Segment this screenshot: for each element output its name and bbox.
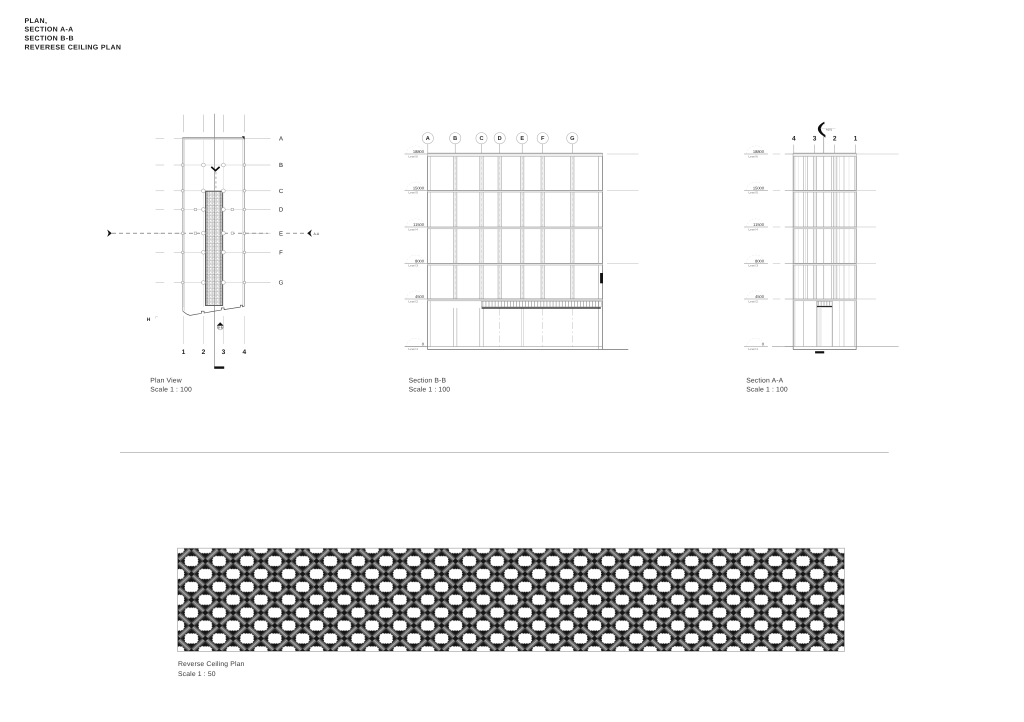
svg-text:C: C	[279, 188, 284, 195]
svg-text:F: F	[541, 136, 545, 142]
svg-text:4: 4	[792, 136, 796, 143]
svg-text:F: F	[279, 249, 283, 256]
svg-text:G: G	[279, 280, 284, 287]
svg-text:SECTION A-A: SECTION A-A	[25, 27, 74, 34]
svg-text:B: B	[279, 162, 283, 169]
svg-text:Scale 1 : 100: Scale 1 : 100	[150, 386, 192, 393]
svg-text:4: 4	[242, 349, 246, 356]
svg-text:11500: 11500	[753, 222, 765, 227]
svg-text:Level 1: Level 1	[749, 347, 759, 351]
svg-text:Section B-B: Section B-B	[409, 377, 447, 384]
svg-text:Scale 1 : 100: Scale 1 : 100	[409, 386, 451, 393]
svg-text:3: 3	[813, 136, 817, 143]
svg-text:REVERESE CEILING PLAN: REVERESE CEILING PLAN	[25, 44, 122, 51]
svg-text:Section A-A: Section A-A	[746, 377, 783, 384]
svg-text:H: H	[147, 317, 151, 323]
svg-text:A: A	[279, 135, 283, 142]
svg-text:E: E	[520, 136, 524, 142]
svg-text:Scale 1 : 50: Scale 1 : 50	[178, 671, 216, 678]
svg-text:B: B	[453, 136, 457, 142]
svg-text:B-B: B-B	[218, 326, 223, 330]
svg-text:4500: 4500	[415, 294, 425, 299]
svg-text:G: G	[570, 136, 574, 142]
svg-text:Level 2: Level 2	[409, 299, 419, 303]
svg-text:2: 2	[833, 136, 837, 143]
svg-text:1: 1	[854, 136, 858, 143]
svg-text:3: 3	[222, 349, 226, 356]
svg-text:Plan View: Plan View	[150, 377, 181, 384]
svg-text:A101: A101	[826, 129, 833, 132]
svg-text:Level 5: Level 5	[749, 191, 759, 195]
svg-text:Level 3: Level 3	[749, 264, 759, 268]
svg-text:8000: 8000	[415, 258, 425, 263]
svg-text:Level 4: Level 4	[749, 227, 759, 231]
svg-text:11500: 11500	[413, 222, 425, 227]
svg-text:Level 4: Level 4	[409, 227, 419, 231]
svg-text:Reverse Ceiling Plan: Reverse Ceiling Plan	[178, 661, 245, 668]
svg-text:D: D	[498, 136, 502, 142]
svg-text:Level 5: Level 5	[409, 191, 419, 195]
svg-text:Level 1: Level 1	[409, 347, 419, 351]
svg-text:Level 2: Level 2	[749, 299, 759, 303]
svg-text:PLAN,: PLAN,	[25, 18, 48, 25]
svg-text:D: D	[279, 207, 284, 214]
svg-text:Level 6: Level 6	[749, 154, 759, 158]
svg-text:A: A	[426, 136, 430, 142]
svg-text:8000: 8000	[755, 258, 765, 263]
svg-text:4500: 4500	[755, 294, 765, 299]
svg-text:Level 6: Level 6	[409, 154, 419, 158]
svg-text:15000: 15000	[753, 185, 765, 190]
svg-text:18800: 18800	[753, 149, 765, 154]
svg-text:1: 1	[182, 349, 186, 356]
svg-text:Scale 1 : 100: Scale 1 : 100	[746, 386, 788, 393]
svg-text:15000: 15000	[413, 185, 425, 190]
svg-text:Level 3: Level 3	[409, 264, 419, 268]
svg-text:SECTION B-B: SECTION B-B	[25, 36, 74, 43]
svg-text:18800: 18800	[413, 149, 425, 154]
svg-text:C: C	[479, 136, 483, 142]
svg-text:2: 2	[202, 349, 206, 356]
svg-text:A-A: A-A	[314, 232, 320, 236]
svg-text:E: E	[279, 230, 283, 237]
